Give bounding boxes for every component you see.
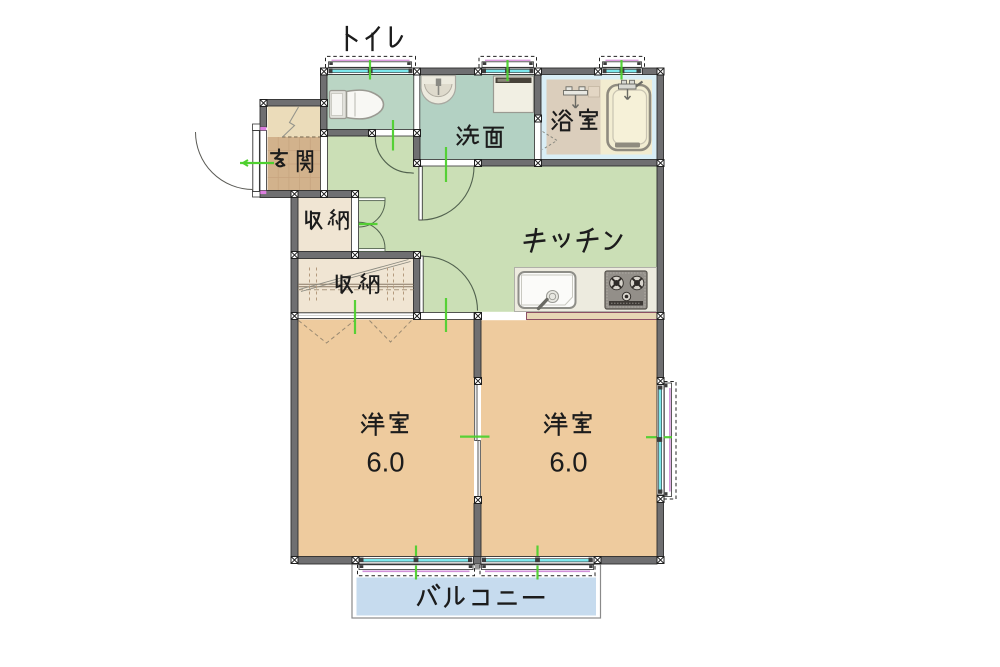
svg-text:6.0: 6.0 (549, 447, 587, 478)
svg-text:6.0: 6.0 (366, 447, 404, 478)
